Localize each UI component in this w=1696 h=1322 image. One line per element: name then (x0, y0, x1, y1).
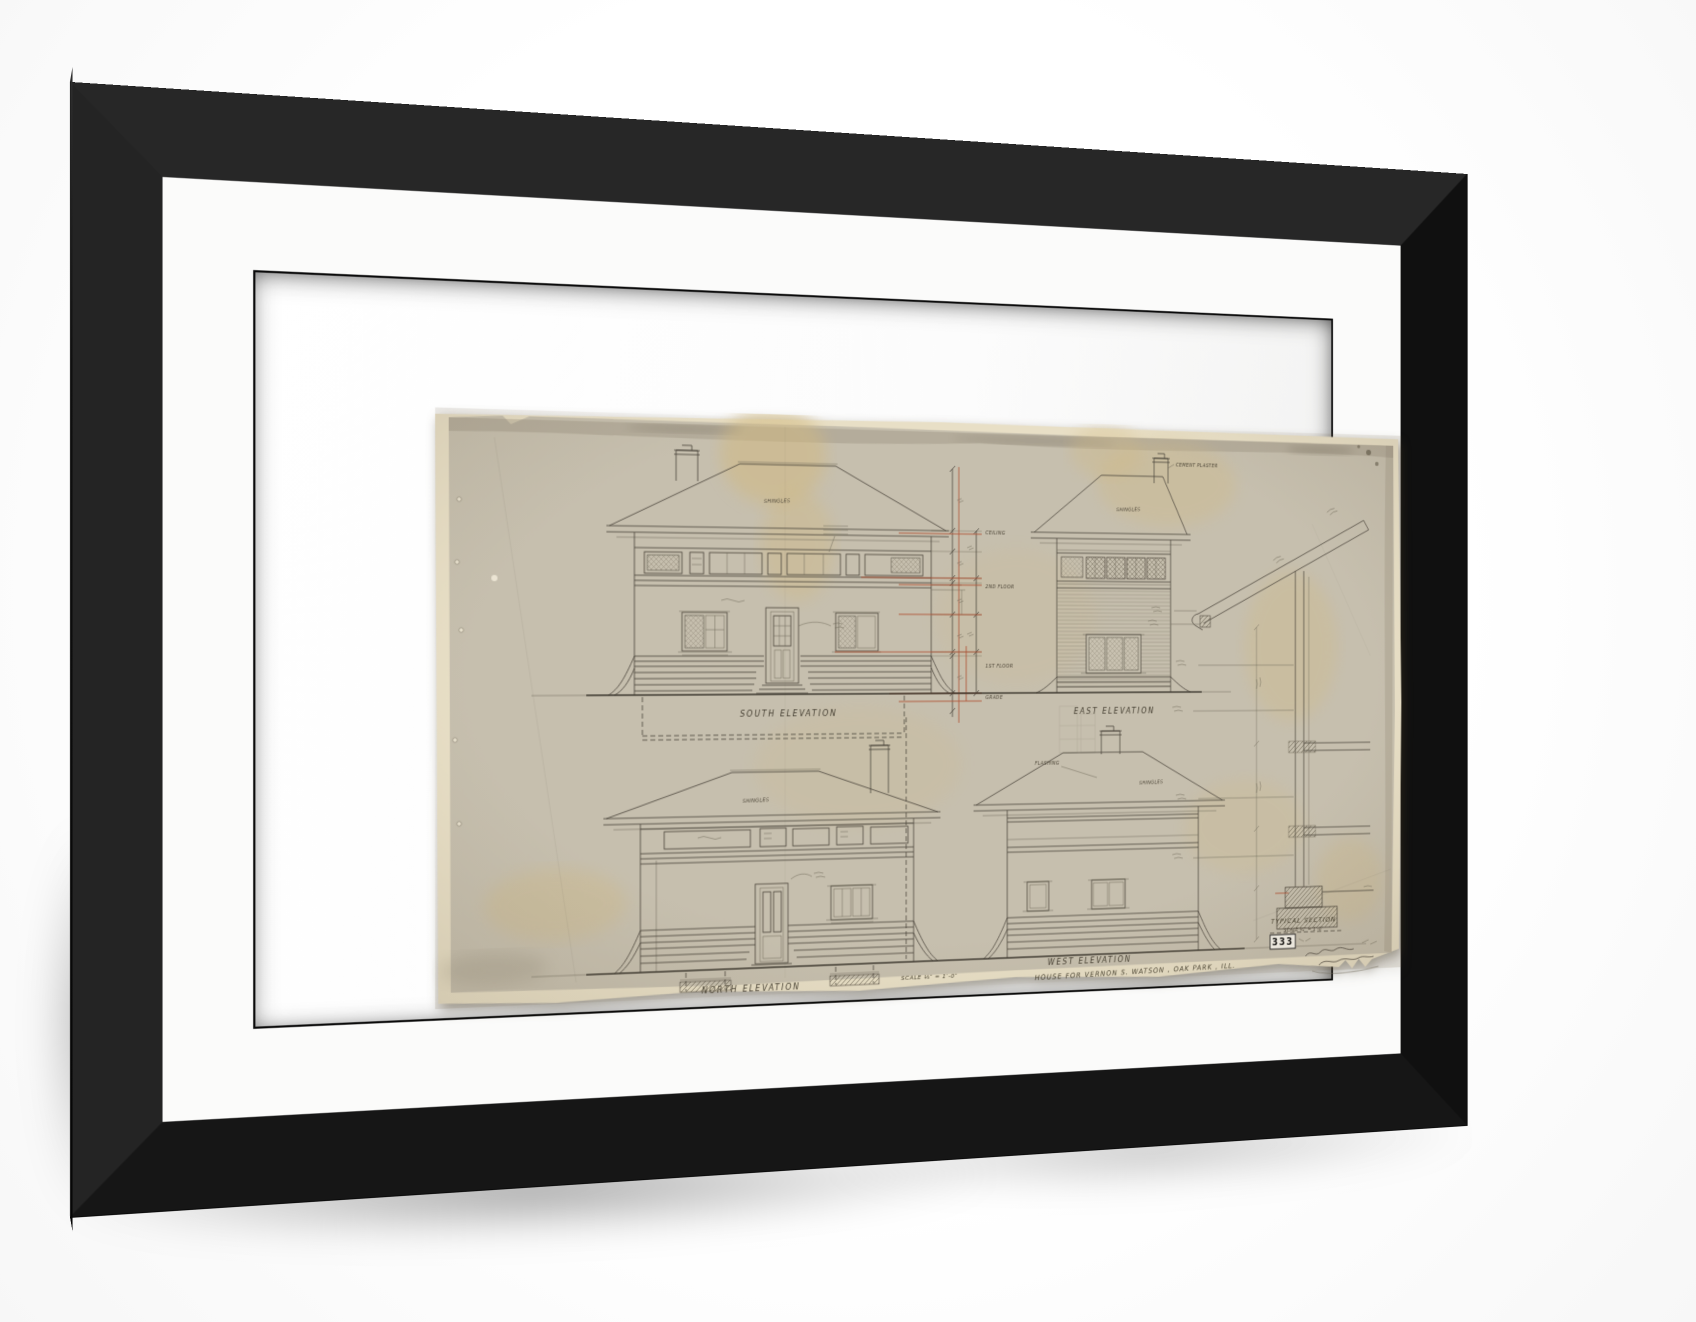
framed-print-product-photo: SHINGLES (0, 0, 1696, 1322)
drawing-paper: SHINGLES (432, 404, 1403, 1018)
north-roof-label: SHINGLES (743, 797, 770, 805)
architectural-drawing: SHINGLES (432, 404, 1403, 1018)
mat-board: SHINGLES (253, 270, 1333, 1029)
north-elevation-label: NORTH ELEVATION (702, 982, 801, 996)
tack-holes (453, 497, 498, 826)
south-roof-label: SHINGLES (764, 498, 791, 505)
south-elevation-label: SOUTH ELEVATION (740, 709, 837, 719)
frame-side-face (70, 67, 73, 1232)
age-vignette (435, 407, 1401, 1009)
frame-front-face: SHINGLES (70, 82, 1467, 1217)
picture-frame: SHINGLES (70, 82, 1467, 1217)
